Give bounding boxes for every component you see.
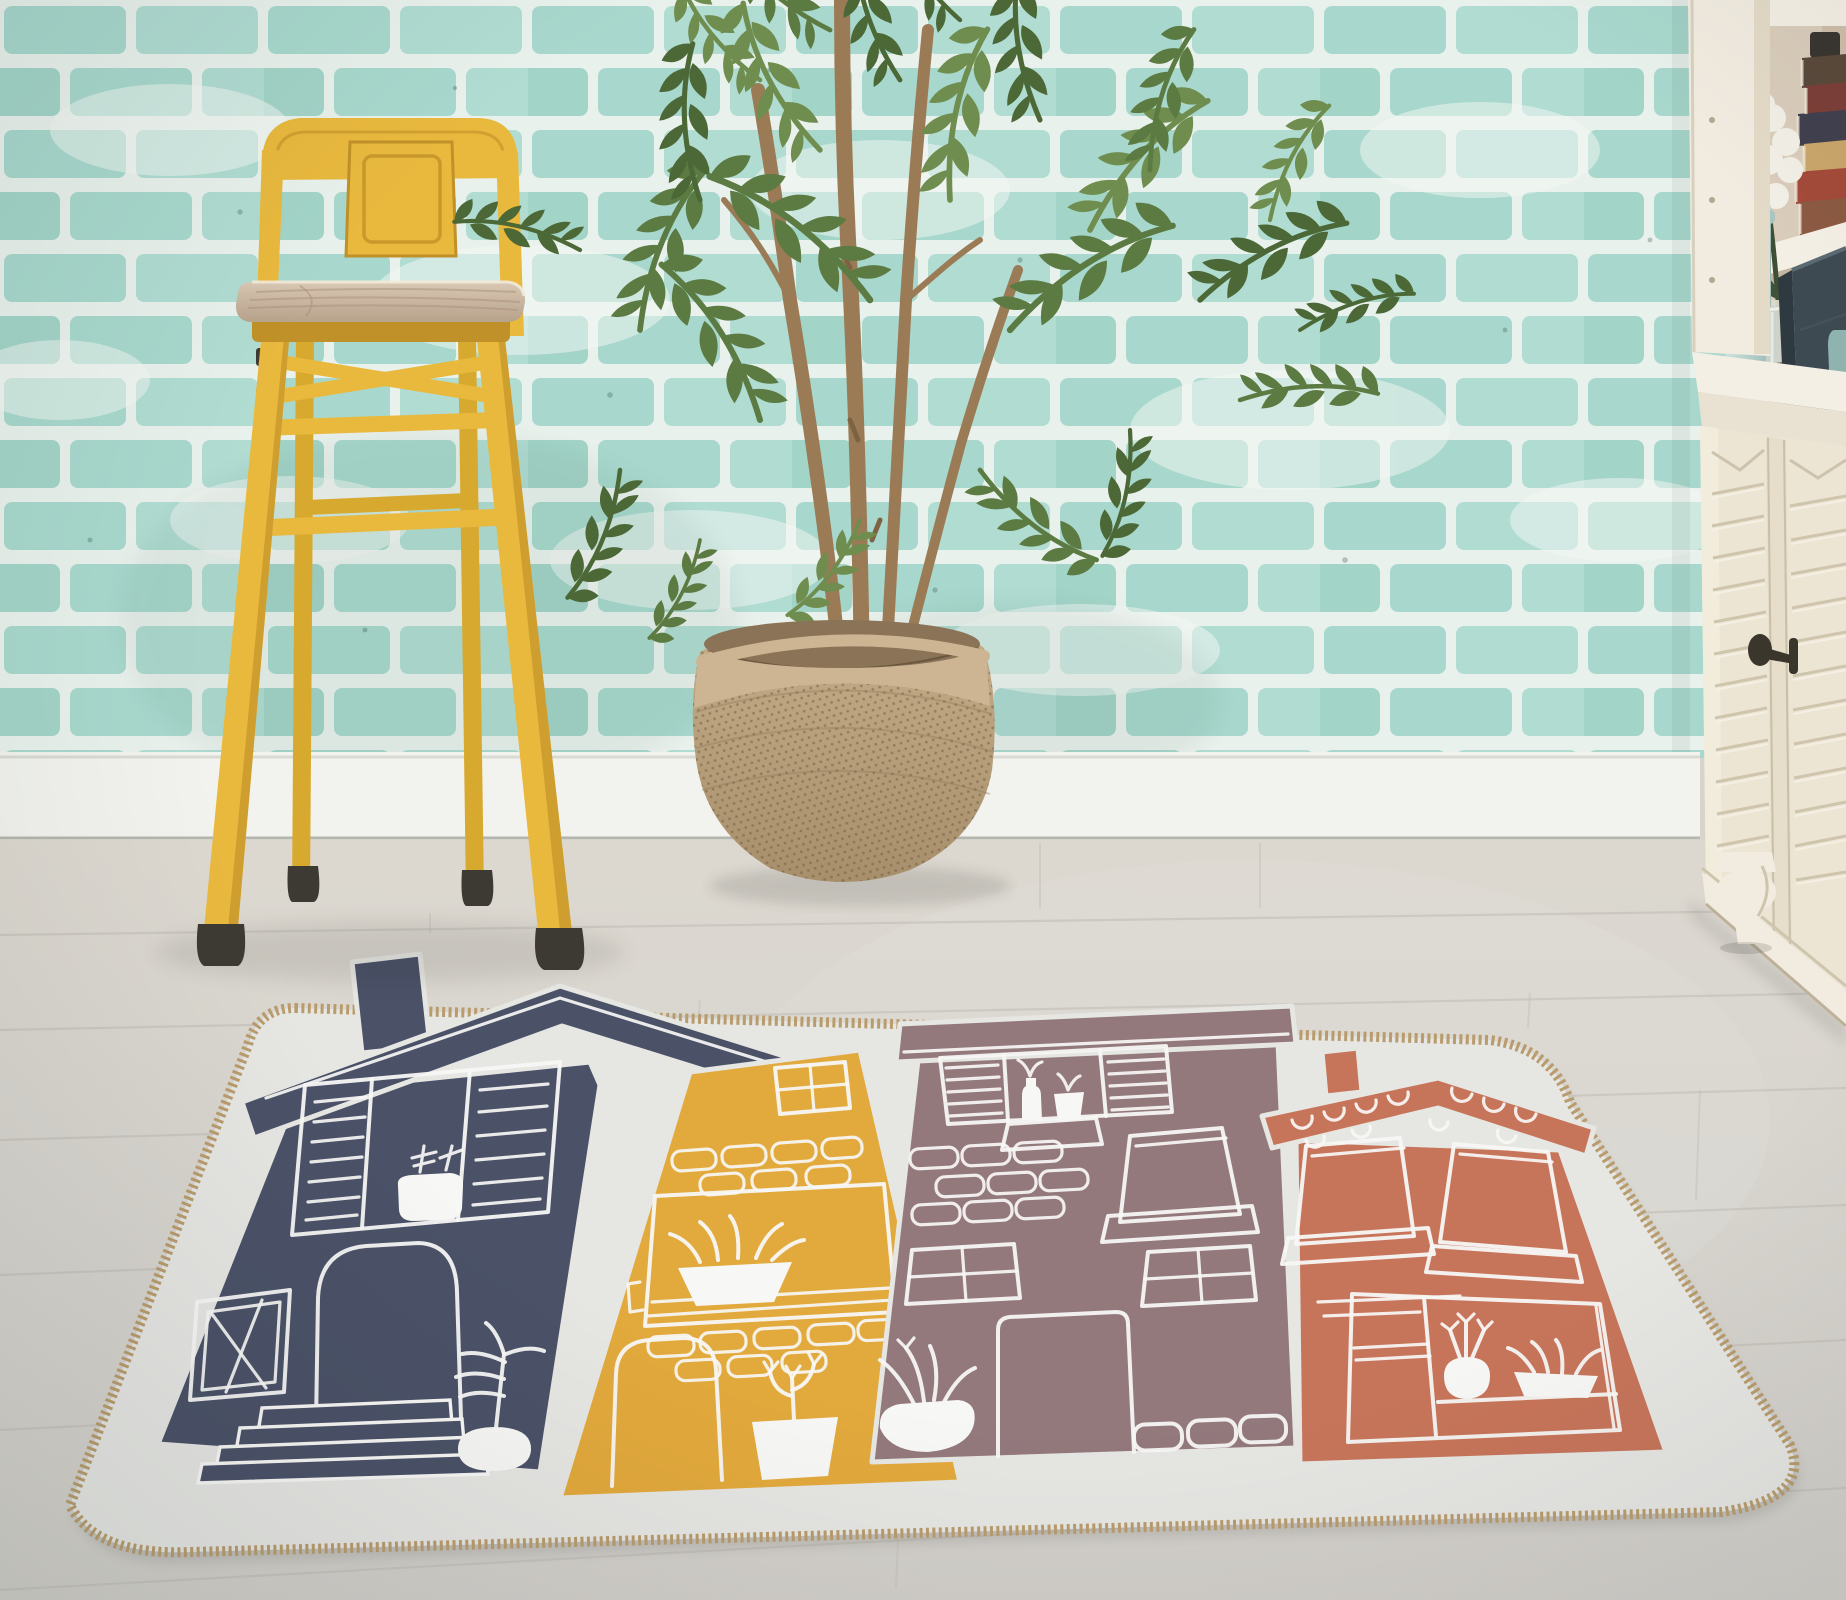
photo-vignette [0,0,1846,1600]
room-photo [0,0,1846,1600]
scene-canvas [0,0,1846,1600]
